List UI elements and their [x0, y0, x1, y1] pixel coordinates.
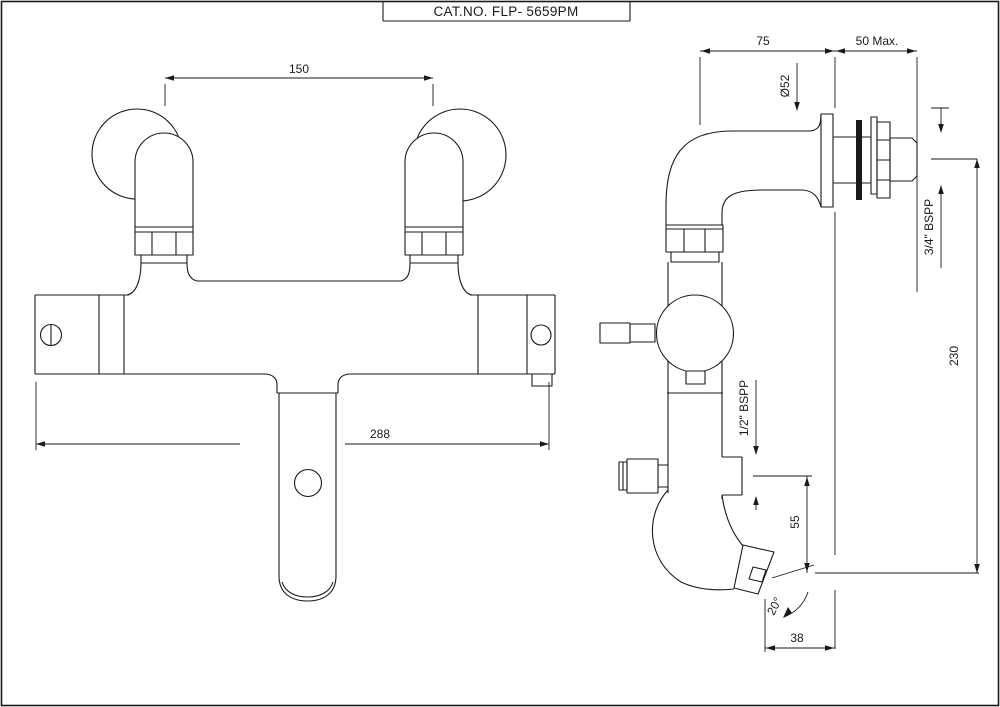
- check-valve-body: [627, 459, 658, 493]
- flow-handle-button: [531, 325, 551, 345]
- angle-line: [772, 565, 814, 578]
- outlet-flange: [734, 545, 774, 594]
- shower-outlet-stub: [722, 457, 742, 495]
- inlet-right: [401, 109, 506, 295]
- bend-outer: [652, 490, 734, 590]
- arrow-down-icon: [753, 446, 759, 455]
- bspp34-label: 3/4" BSPP: [922, 199, 936, 255]
- dim-75: 75: [700, 34, 835, 125]
- inlet-elbow: [135, 133, 193, 227]
- arrow-left-icon: [36, 441, 45, 446]
- hex-nut: [135, 227, 193, 255]
- inlet-fillets: [127, 263, 197, 295]
- bend-inner: [722, 495, 743, 546]
- arrow-left-icon: [836, 48, 845, 53]
- arrow-right-icon: [907, 48, 916, 53]
- dim-230: 230: [931, 159, 980, 573]
- arrow-right-icon: [825, 645, 834, 650]
- threaded-tail: [890, 138, 917, 181]
- spout-tube: [279, 393, 336, 576]
- dim-230-label: 230: [947, 346, 961, 366]
- dim-75-lines: [700, 51, 835, 125]
- hex-nut-facets: [405, 232, 463, 255]
- arrow-left-icon: [165, 75, 174, 80]
- drawing-sheet: CAT.NO. FLP- 5659PM 150: [0, 0, 1000, 707]
- dim-150: 150: [165, 62, 433, 106]
- diverter-button: [295, 470, 322, 497]
- inlet-elbow: [405, 133, 463, 227]
- body-connector: [671, 252, 719, 262]
- wall-flange: [821, 114, 833, 207]
- inlet-fillets: [401, 263, 472, 295]
- dim-20-label: 20°: [764, 595, 785, 618]
- inlet-connector: [410, 255, 458, 263]
- dim-288-lines: [36, 382, 549, 450]
- hex-nut-facets: [135, 232, 193, 255]
- hex-nut-facets: [666, 229, 723, 252]
- body-horizontals: [35, 295, 555, 374]
- catalog-number-title: CAT.NO. FLP- 5659PM: [434, 4, 579, 19]
- arrow-angle-icon: [783, 607, 792, 618]
- arrow-down-icon: [938, 124, 944, 133]
- arrow-down-icon: [794, 102, 800, 111]
- spout-front: [266, 374, 349, 601]
- inlet-left: [92, 109, 197, 295]
- front-view: 150: [35, 62, 555, 601]
- wall-mount: [666, 114, 917, 225]
- spout-neck: [266, 374, 349, 393]
- thermostat-knob: [657, 295, 734, 372]
- mixer-body: [35, 281, 555, 386]
- elbow-inner: [722, 190, 821, 225]
- lever-handle-arm: [630, 324, 655, 342]
- dim-55-label: 55: [788, 515, 802, 529]
- arrow-up-icon: [974, 159, 980, 168]
- dim-150-label: 150: [289, 62, 309, 76]
- elbow-outer: [666, 114, 821, 225]
- dim-50-label: 50 Max.: [856, 34, 899, 48]
- dim-34bspp: 3/4" BSPP: [922, 108, 949, 268]
- technical-drawing: CAT.NO. FLP- 5659PM 150: [0, 0, 1000, 707]
- bspp12-label: 1/2" BSPP: [737, 380, 751, 436]
- valve-body: [600, 225, 742, 499]
- side-view: 75 50 Max. Ø52: [600, 34, 980, 652]
- arrow-right-icon: [424, 75, 433, 80]
- arrow-right-icon: [540, 441, 549, 446]
- dim-150-lines: [165, 78, 433, 106]
- lever-handle-tip: [600, 323, 630, 343]
- washer: [871, 117, 877, 194]
- dim-dia52: Ø52: [778, 63, 800, 111]
- hex-nut: [405, 227, 463, 255]
- dim-12bspp: 1/2" BSPP: [737, 380, 759, 510]
- arrow-right-icon: [825, 48, 834, 53]
- sheet-border: [2, 2, 999, 706]
- dim-50-max: 50 Max.: [835, 34, 917, 649]
- arrow-left-icon: [701, 48, 710, 53]
- dim-75-label: 75: [756, 34, 770, 48]
- dia52-label: Ø52: [778, 74, 792, 97]
- sheet-frame: CAT.NO. FLP- 5659PM: [2, 2, 999, 706]
- dim-288: 288: [36, 382, 549, 450]
- check-valve-neck: [658, 465, 668, 487]
- inlet-pipe: [833, 137, 871, 183]
- spout-tip-inner: [282, 582, 333, 597]
- dim-50-lines: [835, 51, 917, 649]
- fixing-nut-facets: [877, 140, 890, 180]
- arrow-left-icon: [766, 645, 775, 650]
- dim-20deg: 20°: [764, 565, 979, 618]
- arrow-up-icon: [804, 477, 810, 486]
- inlet-connector: [141, 255, 187, 263]
- rubber-gasket: [856, 120, 862, 200]
- knob-stop-tab: [686, 371, 705, 384]
- dim-38-label: 38: [790, 631, 804, 645]
- body-verticals: [35, 295, 555, 374]
- arrow-up-icon: [753, 496, 759, 505]
- arrow-up-icon: [938, 185, 944, 194]
- dim-288-label: 288: [370, 427, 390, 441]
- arrow-down-icon: [974, 564, 980, 573]
